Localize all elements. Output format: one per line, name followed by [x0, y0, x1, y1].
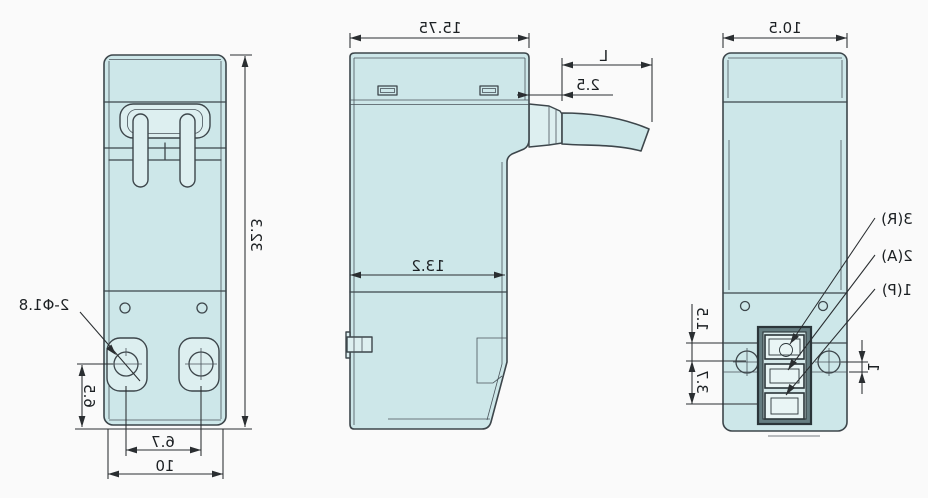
dim-side-width: 15.75	[350, 19, 529, 48]
dim-label-hole-callout: 2-Φ1.8	[19, 296, 70, 314]
front-prong-left	[133, 114, 148, 187]
terminal-port-1	[765, 393, 804, 419]
dim-label-side-width: 15.75	[419, 19, 462, 37]
back-view: 3(R) 2(A) 1(P) 10.5 1.5 3.7 1	[686, 19, 913, 436]
port-label-1P: 1(P)	[882, 281, 912, 299]
dim-back-width: 10.5	[723, 19, 847, 48]
dim-label-back-pitch: 3.7	[693, 370, 711, 394]
dim-label-back-edge: 1	[864, 362, 882, 372]
cable-boss	[529, 104, 562, 147]
dim-label-front-height: 32.3	[247, 218, 265, 251]
side-view: 15.75 2.5 L 13.2	[346, 19, 652, 429]
dim-label-cable-offset: 2.5	[576, 76, 600, 94]
dim-label-front-width: 10	[155, 457, 174, 475]
front-view: 2-Φ1.8 32.3 6.5 6.7 10	[19, 55, 265, 479]
front-prong-right	[180, 114, 195, 187]
dim-label-back-step: 1.5	[693, 307, 711, 331]
terminal-port-2	[765, 364, 804, 388]
dim-cable-length: L	[562, 47, 652, 122]
dim-label-side-lower-width: 13.2	[411, 257, 444, 275]
dim-label-front-hole-spacing: 6.7	[151, 433, 175, 451]
dim-label-cable-length: L	[599, 47, 608, 65]
valve-dimension-drawing: 2-Φ1.8 32.3 6.5 6.7 10	[0, 0, 928, 498]
technical-drawing-canvas: 2-Φ1.8 32.3 6.5 6.7 10	[0, 0, 928, 498]
port-label-2A: 2(A)	[881, 247, 913, 265]
dim-label-back-width: 10.5	[768, 19, 801, 37]
cable	[562, 113, 649, 151]
port-label-3R: 3(R)	[881, 210, 913, 228]
terminal-port-3	[765, 335, 804, 359]
dim-label-front-hole-offset: 6.5	[80, 384, 98, 408]
